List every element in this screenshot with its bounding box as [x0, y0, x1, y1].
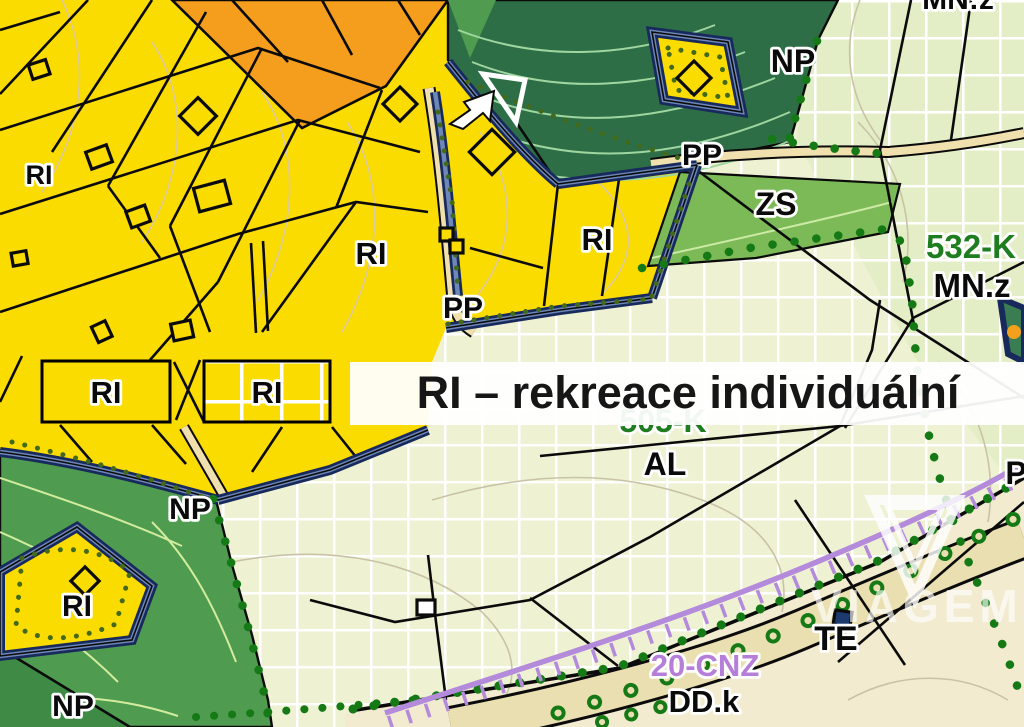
label-np-southwest: NP — [52, 690, 94, 723]
label-ri-center: RI — [582, 222, 613, 257]
label-ri-southwest: RI — [62, 590, 92, 623]
zoning-map-screenshot[interactable]: MN:z NP PP ZS 532-K MN.z RI RI RI PP NP … — [0, 0, 1024, 727]
label-np-west: NP — [169, 493, 211, 526]
map-canvas[interactable]: MN:z NP PP ZS 532-K MN.z RI RI RI PP NP … — [0, 0, 1024, 727]
label-zs: ZS — [756, 186, 797, 222]
label-al: AL — [644, 446, 687, 482]
label-pp-center: PP — [443, 292, 483, 325]
label-p-east-clipped: P — [1005, 455, 1024, 491]
label-mn-z-east: MN.z — [934, 267, 1011, 304]
label-dd-k: DD.k — [669, 684, 740, 719]
label-532k: 532-K — [926, 228, 1016, 265]
label-np-northeast: NP — [771, 43, 815, 79]
watermark-text: VIAGEM — [811, 580, 1022, 632]
label-pp-northeast: PP — [682, 139, 722, 172]
label-mn-z-top: MN:z — [922, 0, 994, 16]
legend-swatch-grid-label: RI — [252, 375, 283, 410]
label-ri-top-left: RI — [26, 160, 53, 190]
label-ri-middle: RI — [356, 236, 387, 271]
legend-title: RI – rekreace individuální — [417, 367, 961, 418]
label-20-cnz: 20-CNZ — [651, 648, 760, 683]
legend-swatch-solid-label: RI — [91, 375, 122, 410]
